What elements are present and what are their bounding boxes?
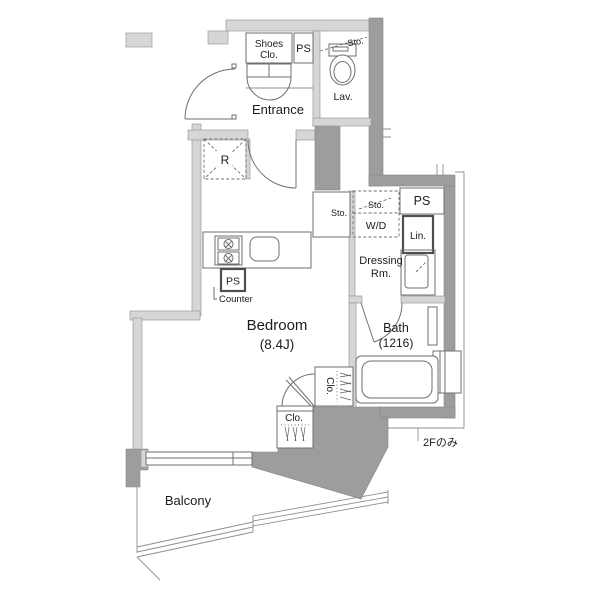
- entrance-door-hinge: [232, 64, 236, 68]
- floor-plan-page: Shoes Clo. PS Sto. Lav. Entrance R Sto. …: [0, 0, 600, 600]
- washer-dryer-label: W/D: [366, 220, 387, 232]
- entrance-door-arc: [185, 69, 235, 119]
- counter-label: Counter: [219, 294, 253, 305]
- fixtures-layer: [203, 33, 444, 448]
- lavatory-label: Lav.: [333, 91, 352, 103]
- wall-upper-right-band: [369, 175, 455, 186]
- bath-door-leaf: [361, 303, 374, 342]
- wall-top: [226, 20, 371, 31]
- wall-left-lower: [133, 318, 142, 451]
- vent-ticks-left: [382, 129, 391, 137]
- kitchen-unit: [203, 232, 311, 299]
- ps-kitchen-label: PS: [226, 276, 240, 288]
- closet-bottom-label: Clo.: [285, 413, 303, 424]
- shoes-closet-label-1: Shoes: [255, 39, 283, 50]
- wall-hall-right-seg: [296, 130, 315, 140]
- wall-bath-bottom: [378, 407, 455, 418]
- wall-bath-top-right: [401, 296, 445, 303]
- toilet-icon: [329, 44, 356, 85]
- wall-hall-block: [315, 126, 340, 190]
- washbasin-icon: [401, 250, 435, 295]
- wall-lav-left: [313, 31, 320, 126]
- wall-lav-right-column: [369, 18, 383, 186]
- wall-top-endcap: [208, 31, 228, 44]
- shoes-closet-arc-left: [247, 77, 270, 100]
- balcony-label: Balcony: [165, 493, 212, 508]
- wall-entrance-step: [188, 130, 248, 140]
- ps-right-label: PS: [414, 194, 431, 208]
- shoes-closet-door-right: [269, 64, 291, 77]
- bath-shelf: [428, 307, 437, 345]
- wall-lower-mass: [252, 407, 388, 499]
- shoes-closet-arc-right: [270, 77, 291, 100]
- shoes-closet-door-left: [247, 64, 269, 77]
- wall-neighbor-stub: [126, 33, 152, 47]
- counter-leader-line: [214, 287, 217, 299]
- refrigerator-label: R: [221, 153, 230, 167]
- wall-lav-bottom: [313, 118, 371, 126]
- bedroom-label: Bedroom: [247, 317, 308, 334]
- bedroom-closet-door-leaf: [286, 377, 315, 407]
- storage-hall-label: Sto.: [331, 208, 347, 218]
- bath-label: Bath: [383, 321, 409, 335]
- bedroom-size-label: (8.4J): [260, 337, 295, 352]
- entrance-label: Entrance: [252, 102, 304, 117]
- entrance-door-stop: [232, 115, 236, 119]
- wall-bath-top-left: [349, 296, 362, 303]
- dressing-label-1: Dressing: [359, 255, 402, 267]
- closet-right-label: Clo.: [324, 377, 335, 395]
- dressing-label-2: Rm.: [371, 268, 391, 280]
- linen-label: Lin.: [410, 231, 426, 242]
- balcony-tip-line: [137, 557, 160, 580]
- storage-lav-label: Sto.: [347, 36, 365, 49]
- shoes-closet-label-2: Clo.: [260, 50, 278, 61]
- bathtub-icon: [356, 356, 438, 403]
- storage-above-wd-label: Sto.: [368, 200, 384, 210]
- hall-door-arc: [248, 140, 296, 188]
- floor-note-label: 2Fのみ: [423, 436, 458, 449]
- wall-left-upper: [192, 124, 201, 316]
- vent-ticks-top: [437, 164, 443, 175]
- bath-size-label: (1216): [379, 336, 414, 350]
- floor-plan-drawing: Shoes Clo. PS Sto. Lav. Entrance R Sto. …: [0, 0, 600, 600]
- washbasin-dash: [416, 262, 426, 272]
- bathtub-outer: [356, 356, 438, 403]
- ps-top-label: PS: [296, 43, 311, 55]
